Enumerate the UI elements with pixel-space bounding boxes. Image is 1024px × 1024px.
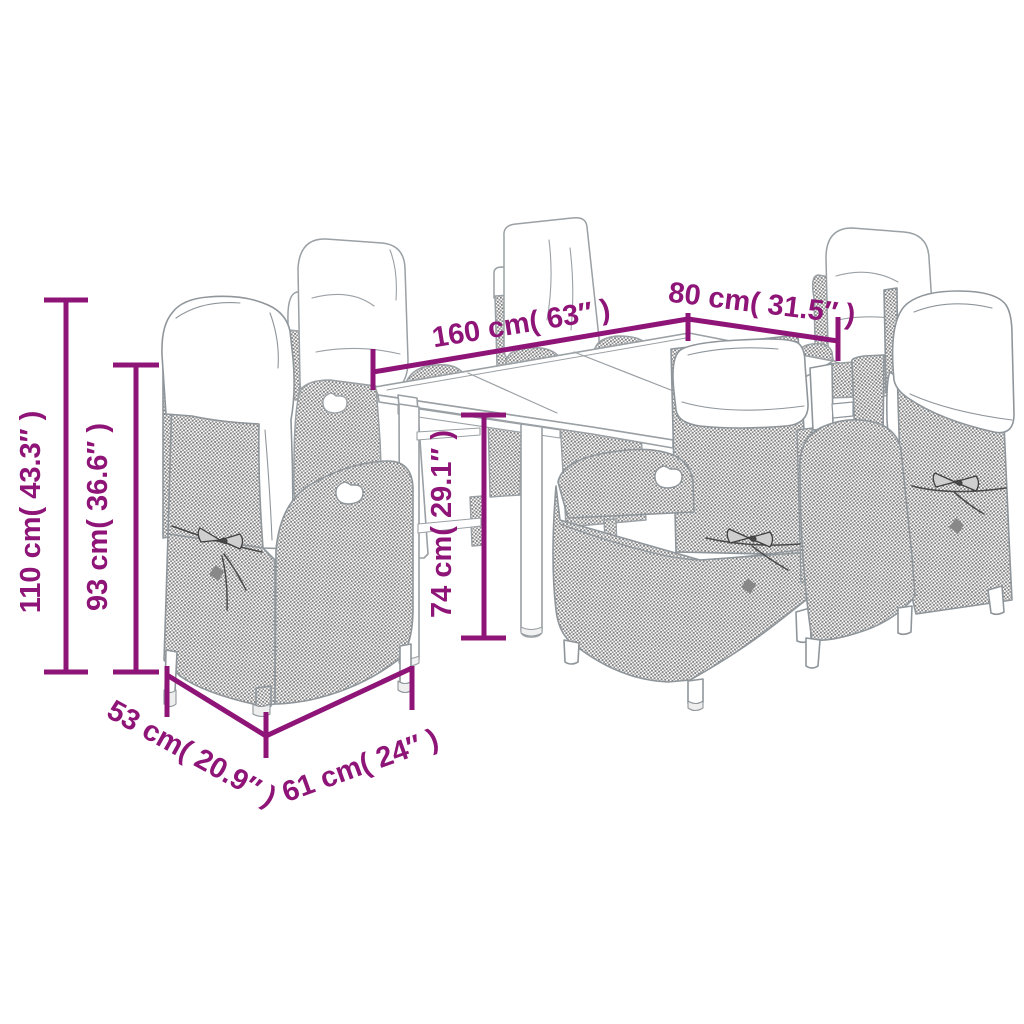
svg-text:110 cm( 43.3″ ): 110 cm( 43.3″ ) [15,411,47,614]
svg-text:74 cm( 29.1″ ): 74 cm( 29.1″ ) [426,430,458,618]
svg-text:93 cm( 36.6″ ): 93 cm( 36.6″ ) [82,423,114,611]
